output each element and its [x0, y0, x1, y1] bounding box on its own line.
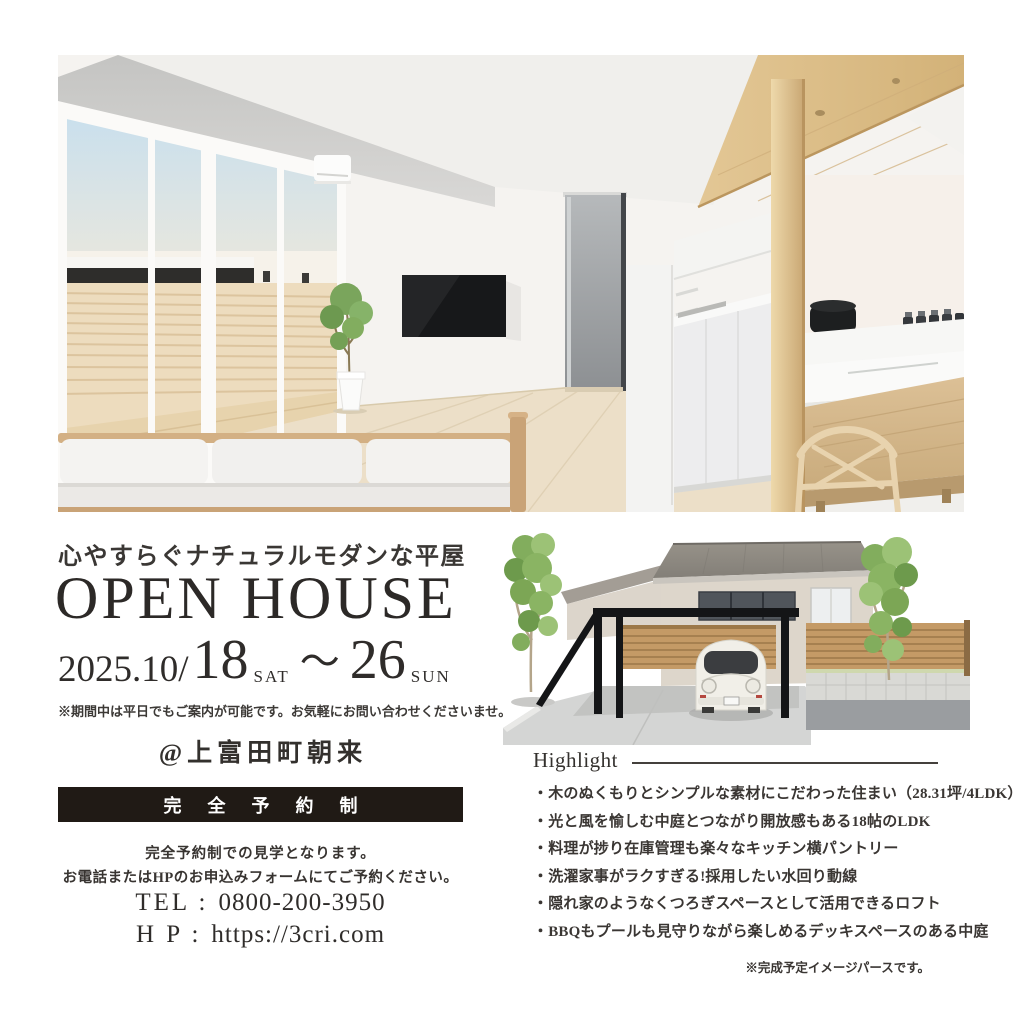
highlight-rule — [632, 762, 938, 764]
open-house-flyer: 心やすらぐナチュラルモダンな平屋 OPEN HOUSE 2025.10/ 18 … — [0, 0, 1024, 1024]
reservation-note-line1: 完全予約制での見学となります。 — [58, 842, 463, 863]
exterior-render-image — [503, 530, 973, 745]
highlight-item: ・光と風を愉しむ中庭とつながり開放感もある18帖のLDK — [533, 809, 1008, 837]
wood-post — [771, 79, 805, 512]
highlight-list: ・木のぬくもりとシンプルな素材にこだわった住まい（28.31坪/4LDK） ・光… — [533, 781, 1008, 946]
highlight-item: ・隠れ家のようなくつろぎスペースとして活用できるロフト — [533, 891, 1008, 919]
date-end-day: 26 — [350, 632, 406, 688]
render-disclaimer: ※完成予定イメージパースです。 — [745, 957, 930, 976]
hallway-door — [563, 192, 627, 392]
highlight-item: ・BBQもプールも見守りながら楽しめるデッキスペースのある中庭 — [533, 919, 1008, 947]
date-end-weekday: SUN — [411, 668, 451, 685]
tel-label: TEL : — [135, 889, 208, 917]
venue: @上富田町朝来 — [58, 733, 463, 769]
hp-row: H P : https://3cri.com — [58, 921, 463, 949]
date-range-mark: 〜 — [300, 642, 340, 682]
highlight-item: ・洗濯家事がラクすぎる!採用したい水回り動線 — [533, 864, 1008, 892]
highlight-header: Highlight — [533, 748, 938, 773]
car — [689, 640, 773, 721]
hp-url: https://3cri.com — [211, 921, 385, 949]
highlight-title: Highlight — [533, 748, 618, 773]
date-year-month: 2025.10/ — [58, 651, 189, 688]
reservation-banner: 完全予約制 — [58, 787, 463, 822]
tel-row: TEL : 0800-200-3950 — [58, 889, 463, 917]
sofa-wood-base — [58, 507, 510, 512]
balcony-railing — [58, 268, 254, 283]
reservation-note-line2: お電話またはHPのお申込みフォームにてご予約ください。 — [58, 866, 463, 887]
highlight-item: ・木のぬくもりとシンプルな素材にこだわった住まい（28.31坪/4LDK） — [533, 781, 1008, 809]
interior-render-image — [58, 55, 964, 512]
schedule-note: ※期間中は平日でもご案内が可能です。お気軽にお問い合わせくださいませ。 — [58, 701, 468, 720]
hp-label: H P : — [136, 921, 201, 949]
date-start-weekday: SAT — [254, 668, 290, 685]
date-start-day: 18 — [193, 632, 249, 688]
wall-tv — [402, 275, 521, 341]
reservation-banner-label: 完全予約制 — [164, 792, 384, 818]
event-dates: 2025.10/ 18 SAT 〜 26 SUN — [58, 632, 468, 688]
downlight-icon — [815, 110, 825, 116]
tel-number: 0800-200-3950 — [218, 889, 385, 917]
air-conditioner — [314, 155, 351, 184]
page-title: OPEN HOUSE — [55, 568, 465, 628]
left-tree — [504, 533, 562, 692]
highlight-item: ・料理が捗り在庫管理も楽々なキッチン横パントリー — [533, 836, 1008, 864]
sofa-wood-arm — [510, 417, 526, 512]
downlight-icon — [892, 78, 900, 84]
